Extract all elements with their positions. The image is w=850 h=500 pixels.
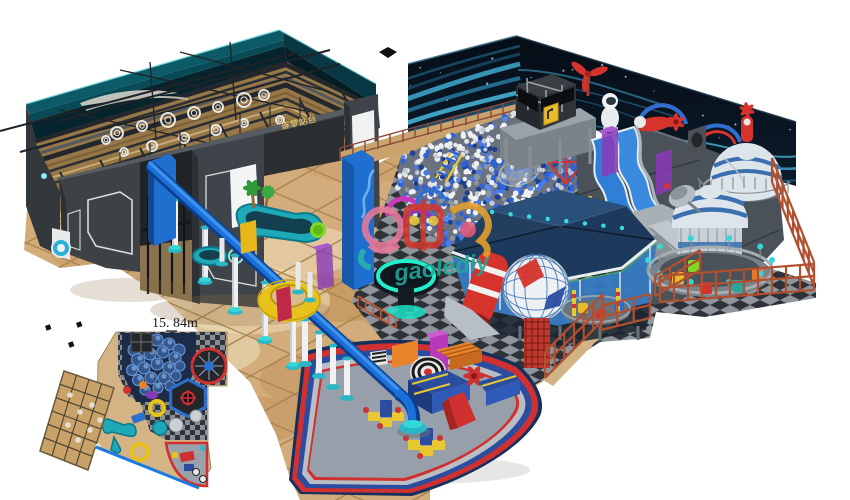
- svg-text:15. 84m: 15. 84m: [152, 316, 198, 331]
